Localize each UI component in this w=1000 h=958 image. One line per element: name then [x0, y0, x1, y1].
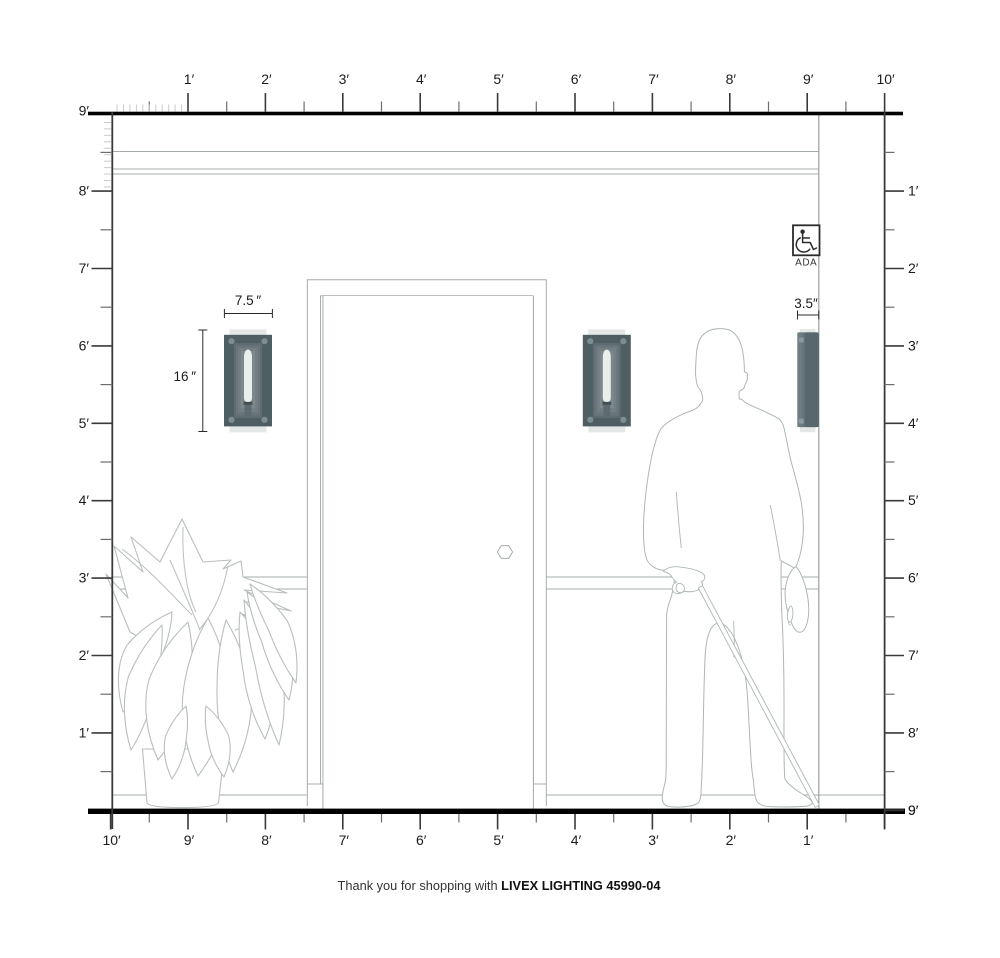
svg-text:6′: 6′ [571, 71, 582, 87]
svg-text:ADA: ADA [795, 258, 817, 269]
svg-text:5′: 5′ [908, 492, 919, 508]
svg-text:7′: 7′ [908, 647, 919, 663]
svg-text:6′: 6′ [79, 337, 90, 353]
svg-text:1′: 1′ [184, 71, 195, 87]
svg-text:4′: 4′ [908, 415, 919, 431]
svg-text:1′: 1′ [803, 832, 814, 848]
svg-text:5′: 5′ [493, 832, 504, 848]
svg-text:7′: 7′ [648, 71, 659, 87]
svg-text:4′: 4′ [416, 71, 427, 87]
svg-text:3.5″: 3.5″ [794, 296, 818, 311]
svg-text:3′: 3′ [908, 337, 919, 353]
svg-text:3′: 3′ [79, 570, 90, 586]
svg-text:2′: 2′ [908, 260, 919, 276]
svg-text:6′: 6′ [416, 832, 427, 848]
svg-text:7′: 7′ [339, 832, 350, 848]
svg-text:10′: 10′ [876, 71, 895, 87]
svg-text:9′: 9′ [803, 71, 814, 87]
svg-text:Thank you for shopping with LI: Thank you for shopping with LIVEX LIGHTI… [338, 878, 662, 893]
svg-text:10′: 10′ [102, 832, 121, 848]
svg-text:4′: 4′ [79, 492, 90, 508]
svg-text:3′: 3′ [648, 832, 659, 848]
svg-text:8′: 8′ [261, 832, 272, 848]
svg-text:1′: 1′ [79, 724, 90, 740]
svg-text:8′: 8′ [726, 71, 737, 87]
svg-text:3′: 3′ [339, 71, 350, 87]
svg-text:2′: 2′ [726, 832, 737, 848]
svg-text:7′: 7′ [79, 260, 90, 276]
svg-text:2′: 2′ [261, 71, 272, 87]
svg-text:9′: 9′ [908, 802, 919, 818]
svg-text:5′: 5′ [79, 415, 90, 431]
svg-text:1′: 1′ [908, 183, 919, 199]
svg-text:6′: 6′ [908, 570, 919, 586]
svg-text:2′: 2′ [79, 647, 90, 663]
svg-text:16 ″: 16 ″ [174, 369, 197, 384]
svg-text:7.5 ″: 7.5 ″ [235, 293, 261, 308]
svg-text:4′: 4′ [571, 832, 582, 848]
svg-text:9′: 9′ [184, 832, 195, 848]
svg-text:8′: 8′ [79, 183, 90, 199]
svg-text:5′: 5′ [493, 71, 504, 87]
svg-text:9′: 9′ [79, 103, 90, 119]
svg-text:8′: 8′ [908, 724, 919, 740]
